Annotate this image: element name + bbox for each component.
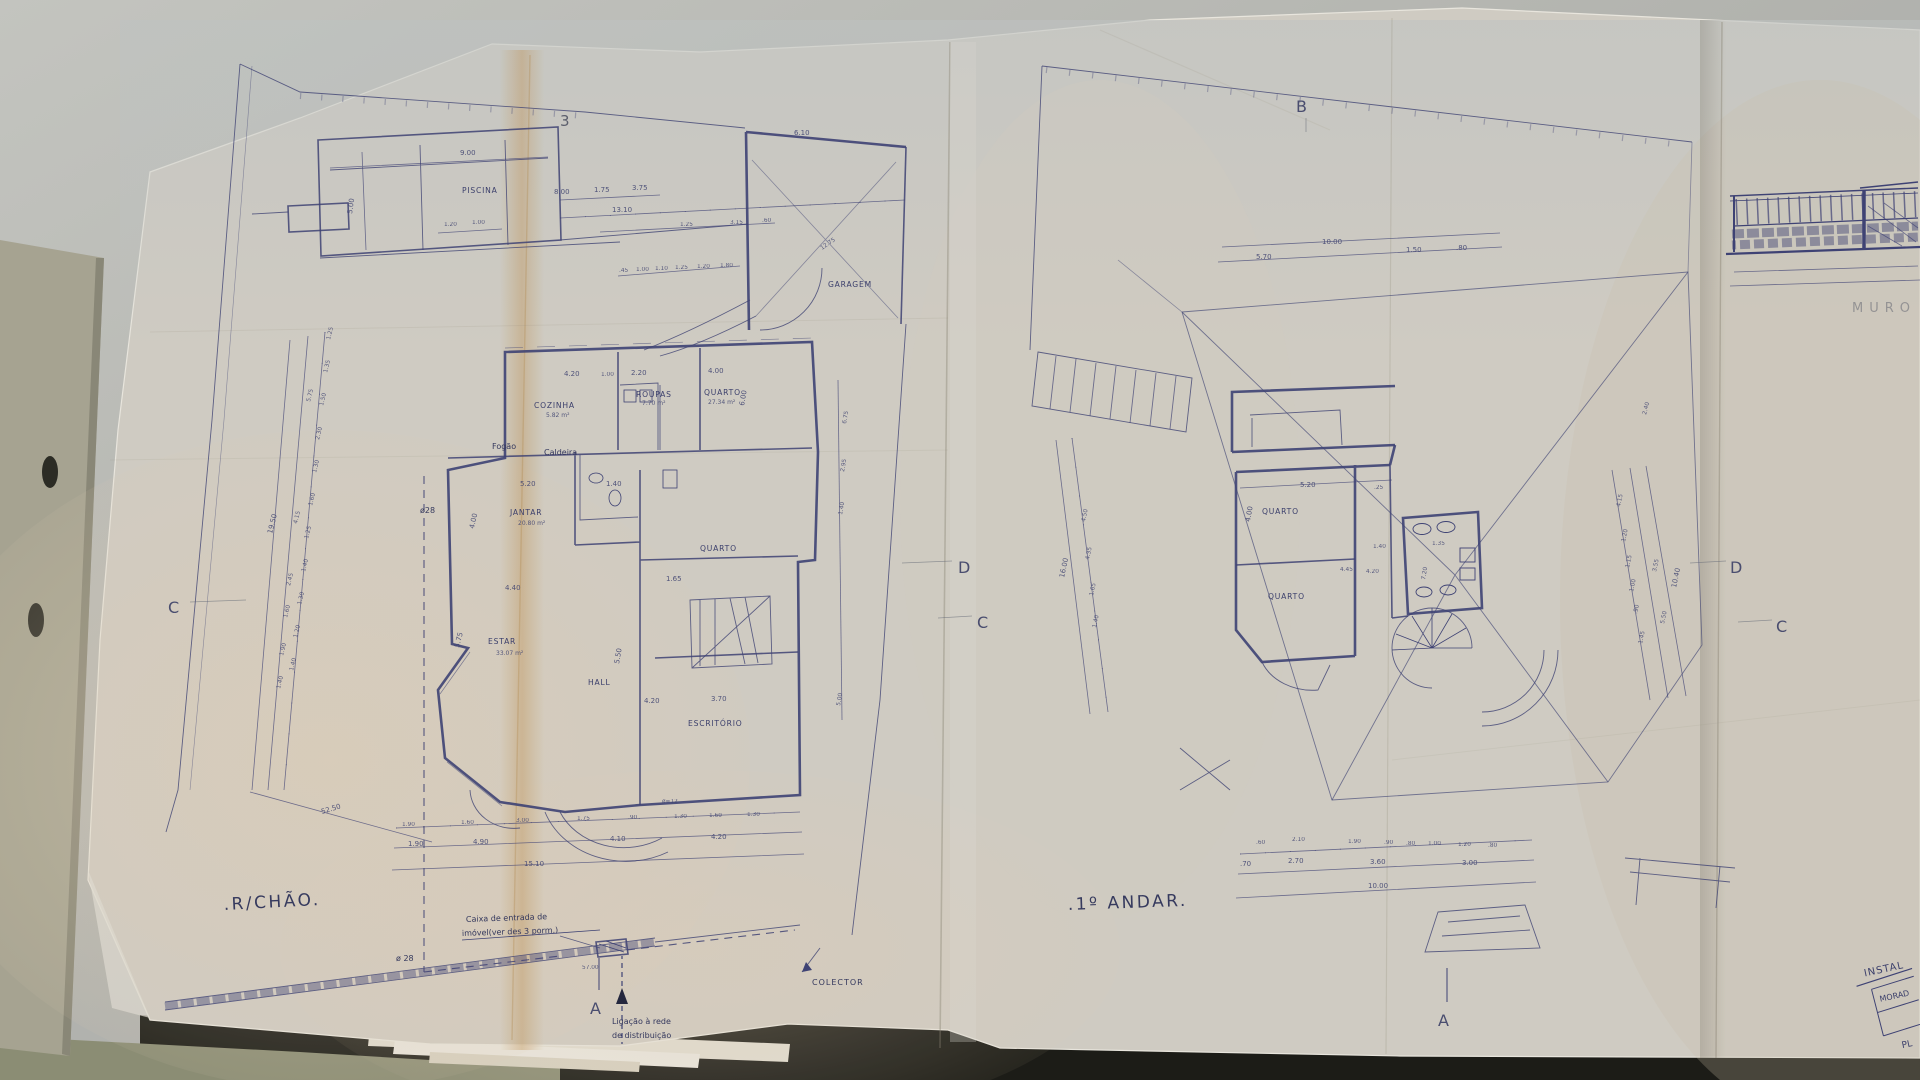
blueprint-photo-canvas: 9.00 5.00 1.20 1.00 PISCINA 8.00 1.75 3.… xyxy=(0,0,1920,1080)
photo-of-blueprint: 9.00 5.00 1.20 1.00 PISCINA 8.00 1.75 3.… xyxy=(0,0,1920,1080)
photo-vignette xyxy=(0,0,1920,1080)
